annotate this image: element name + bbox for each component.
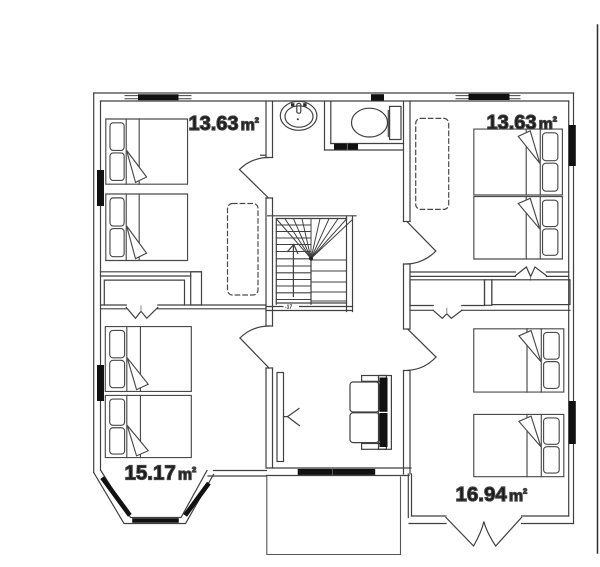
svg-text:13.63m2: 13.63m2 (487, 112, 557, 134)
svg-text:-17: -17 (285, 304, 292, 310)
svg-text:15.17m2: 15.17m2 (125, 462, 197, 485)
svg-text:16.94m2: 16.94m2 (456, 483, 528, 506)
svg-text:13.63m2: 13.63m2 (189, 113, 259, 135)
